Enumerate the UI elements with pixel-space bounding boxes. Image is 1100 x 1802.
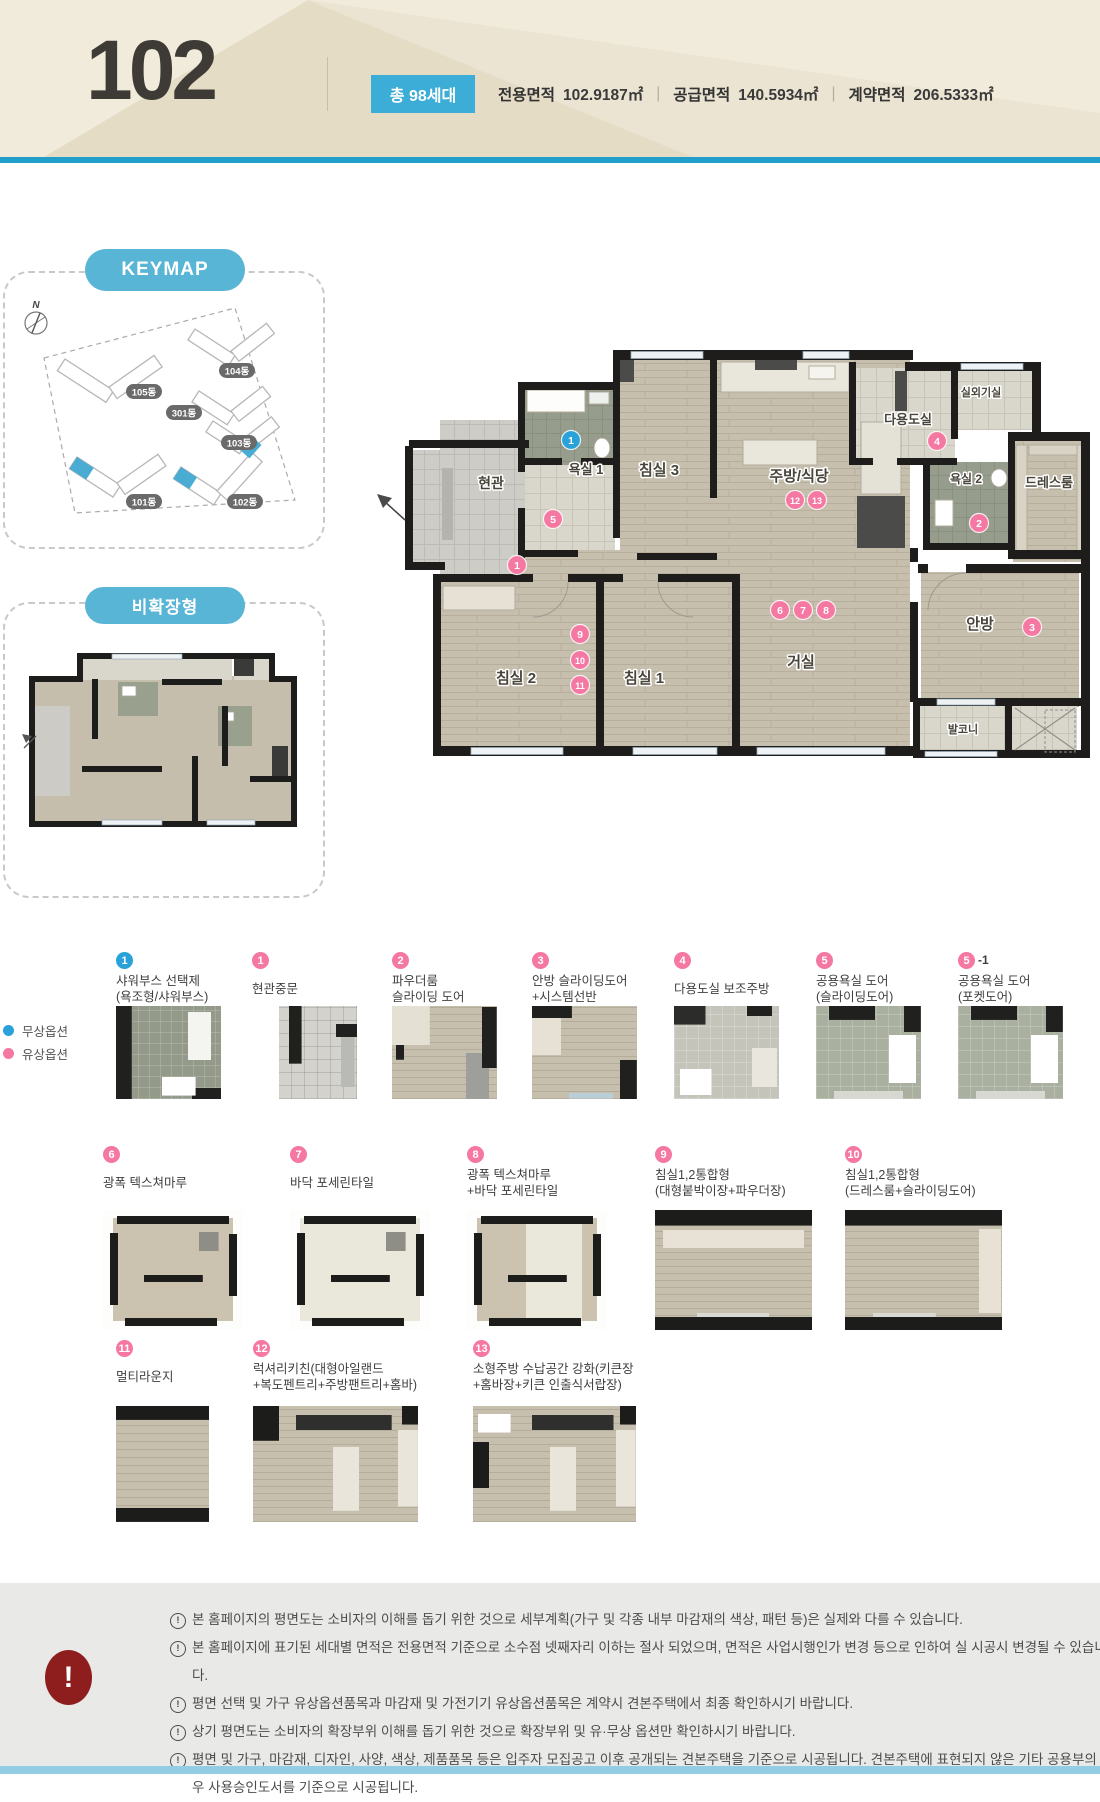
free-option-label: 무상옵션 bbox=[22, 1021, 68, 1040]
room-label: 다용도실 bbox=[884, 412, 932, 427]
option-number-badge-10: 10 bbox=[845, 1146, 862, 1163]
option-label: 공용욕실 도어(슬라이딩도어) bbox=[816, 972, 893, 1006]
option-number-badge-8: 8 bbox=[467, 1146, 484, 1163]
option-label: 샤워부스 선택제(욕조형/샤워부스) bbox=[116, 972, 208, 1006]
household-count-badge: 총 98세대 bbox=[371, 75, 475, 113]
room-label: 발코니 bbox=[948, 722, 978, 736]
floorplan-marker-9: 9 bbox=[571, 625, 590, 644]
floorplan-marker-11: 11 bbox=[571, 676, 590, 695]
floorplan-marker-1: 1 bbox=[562, 431, 581, 450]
floorplan-marker-12: 12 bbox=[786, 491, 805, 510]
area-summary: 전용면적102.9187㎡|공급면적140.5934㎡|계약면적206.5333… bbox=[498, 75, 994, 113]
floorplan-marker-13: 13 bbox=[808, 491, 827, 510]
option-number-badge-4: 4 bbox=[674, 952, 691, 969]
notice-bullet-icon: ! bbox=[170, 1725, 186, 1741]
floorplan-marker-10: 10 bbox=[571, 651, 590, 670]
nonexpanded-mini-floorplan bbox=[22, 646, 306, 846]
option-label: 공용욕실 도어(포켓도어) bbox=[958, 972, 1030, 1006]
svg-text:105동: 105동 bbox=[132, 388, 157, 399]
notice-text: 본 홈페이지의 평면도는 소비자의 이해를 돕기 위한 것으로 세부계획(가구 … bbox=[192, 1612, 963, 1627]
area-value: 102.9187㎡ bbox=[563, 83, 643, 105]
notice-text: 상기 평면도는 소비자의 확장부위 이해를 돕기 위한 것으로 확장부위 및 유… bbox=[192, 1724, 796, 1739]
keymap-site-plan: N 105동104동301동103동101동102동 bbox=[3, 271, 323, 547]
svg-text:11: 11 bbox=[575, 681, 585, 691]
notice-item: !본 홈페이지의 평면도는 소비자의 이해를 돕기 위한 것으로 세부계획(가구… bbox=[170, 1606, 1100, 1634]
option-label: 바닥 포세린타일 bbox=[290, 1166, 374, 1200]
option-number-badge-7: 7 bbox=[290, 1146, 307, 1163]
area-label: 계약면적 bbox=[848, 83, 905, 105]
room-label: 주방/식당 bbox=[769, 467, 829, 485]
option-label: 파우더룸슬라이딩 도어 bbox=[392, 972, 464, 1006]
notice-item: !본 홈페이지에 표기된 세대별 면적은 전용면적 기준으로 소수점 넷째자리 … bbox=[170, 1634, 1100, 1690]
option-number-badge-1: 1 bbox=[116, 952, 133, 969]
keymap-building-label: 301동 bbox=[166, 405, 202, 420]
option-number-badge-5: 5 bbox=[816, 952, 833, 969]
svg-text:10: 10 bbox=[575, 656, 585, 666]
floorplan-marker-5: 5 bbox=[544, 510, 563, 529]
svg-text:5: 5 bbox=[550, 514, 556, 526]
option-label: 안방 슬라이딩도어+시스템선반 bbox=[532, 972, 627, 1006]
area-separator: | bbox=[831, 85, 835, 103]
header-accent-line bbox=[0, 157, 1100, 163]
room-label: 욕실 2 bbox=[950, 471, 982, 486]
svg-text:2: 2 bbox=[976, 518, 982, 530]
option-label: 소형주방 수납공간 강화(키큰장+홈바장+키큰 인출식서랍장) bbox=[473, 1360, 634, 1394]
utility-sub-kitchen-option-thumbnail bbox=[674, 1006, 779, 1099]
floorplan-marker-7: 7 bbox=[794, 601, 813, 620]
option-label: 광폭 텍스쳐마루+바닥 포세린타일 bbox=[467, 1166, 558, 1200]
svg-text:104동: 104동 bbox=[225, 367, 250, 378]
legend-paid-option: 유상옵션 bbox=[3, 1044, 68, 1063]
svg-text:102동: 102동 bbox=[233, 498, 258, 509]
main-floorplan: 현관욕실 1침실 3주방/식당다용도실실외기실욕실 2드레스룸안방거실침실 1침… bbox=[365, 350, 1095, 760]
area-separator: | bbox=[656, 85, 660, 103]
option-label: 멀티라운지 bbox=[116, 1360, 174, 1394]
area-label: 공급면적 bbox=[673, 83, 730, 105]
option-number-badge-1: 1 bbox=[252, 952, 269, 969]
svg-text:1: 1 bbox=[514, 560, 520, 572]
svg-text:301동: 301동 bbox=[172, 409, 197, 420]
option-number-badge-2: 2 bbox=[392, 952, 409, 969]
option-number-badge-5-1: 5-1 bbox=[958, 952, 975, 969]
room-label: 욕실 1 bbox=[569, 462, 604, 477]
paid-option-label: 유상옵션 bbox=[22, 1044, 68, 1063]
shared-bath-pocket-door-option-thumbnail bbox=[958, 1006, 1063, 1099]
entry-middle-door-option-thumbnail bbox=[252, 1006, 357, 1099]
footer-accent-bar bbox=[0, 1766, 1100, 1774]
area-label: 전용면적 bbox=[498, 83, 555, 105]
luxury-kitchen-option-thumbnail bbox=[253, 1406, 418, 1522]
room-label: 침실 2 bbox=[496, 670, 536, 687]
room-label: 침실 1 bbox=[624, 670, 664, 687]
keymap-building-label: 101동 bbox=[126, 494, 162, 509]
option-label: 럭셔리키친(대형아일랜드+복도펜트리+주방팬트리+홈바) bbox=[253, 1360, 417, 1394]
header-divider bbox=[327, 57, 328, 111]
nonexpanded-title: 비확장형 bbox=[85, 587, 245, 624]
notice-bullet-icon: ! bbox=[170, 1697, 186, 1713]
combined-bedroom-closet-option-thumbnail bbox=[655, 1210, 812, 1330]
option-number-badge-12: 12 bbox=[253, 1340, 270, 1357]
option-label: 침실1,2통합형(드레스룸+슬라이딩도어) bbox=[845, 1166, 976, 1200]
paid-option-dot-icon bbox=[3, 1048, 14, 1059]
option-label: 현관중문 bbox=[252, 972, 298, 1006]
option-number-badge-9: 9 bbox=[655, 1146, 672, 1163]
area-value: 140.5934㎡ bbox=[738, 83, 818, 105]
svg-text:4: 4 bbox=[934, 436, 940, 448]
powder-room-sliding-door-option-thumbnail bbox=[392, 1006, 497, 1099]
area-value: 206.5333㎡ bbox=[914, 83, 994, 105]
notice-item: !평면 및 가구, 마감재, 디자인, 사양, 색상, 제품품목 등은 입주자 … bbox=[170, 1746, 1100, 1802]
multi-lounge-option-thumbnail bbox=[116, 1406, 209, 1522]
option-label: 다용도실 보조주방 bbox=[674, 972, 769, 1006]
porcelain-tile-floor-option-thumbnail bbox=[290, 1210, 430, 1330]
svg-text:6: 6 bbox=[777, 605, 783, 617]
svg-text:13: 13 bbox=[812, 496, 822, 506]
svg-text:1: 1 bbox=[568, 435, 574, 447]
svg-text:N: N bbox=[32, 300, 40, 311]
svg-text:101동: 101동 bbox=[132, 498, 157, 509]
floorplan-marker-8: 8 bbox=[817, 601, 836, 620]
master-sliding-door-option-thumbnail bbox=[532, 1006, 637, 1099]
floorplan-marker-1: 1 bbox=[508, 556, 527, 575]
mixed-floor-option-thumbnail bbox=[467, 1210, 607, 1330]
option-label: 광폭 텍스쳐마루 bbox=[103, 1166, 187, 1200]
option-label: 침실1,2통합형(대형붙박이장+파우더장) bbox=[655, 1166, 786, 1200]
small-kitchen-storage-option-thumbnail bbox=[473, 1406, 636, 1522]
floorplan-marker-6: 6 bbox=[771, 601, 790, 620]
room-label: 안방 bbox=[966, 615, 994, 633]
keymap-building-label: 102동 bbox=[227, 494, 263, 509]
room-label: 현관 bbox=[478, 475, 504, 491]
room-label: 거실 bbox=[787, 654, 815, 671]
notice-text: 본 홈페이지에 표기된 세대별 면적은 전용면적 기준으로 소수점 넷째자리 이… bbox=[192, 1640, 1100, 1683]
keymap-building-label: 105동 bbox=[126, 384, 162, 399]
shower-booth-option-thumbnail bbox=[116, 1006, 221, 1099]
notice-bullet-icon: ! bbox=[170, 1613, 186, 1629]
shared-bath-sliding-door-option-thumbnail bbox=[816, 1006, 921, 1099]
svg-text:3: 3 bbox=[1029, 622, 1035, 634]
combined-bedroom-dressroom-option-thumbnail bbox=[845, 1210, 1002, 1330]
floorplan-marker-2: 2 bbox=[970, 514, 989, 533]
option-number-badge-3: 3 bbox=[532, 952, 549, 969]
legend-free-option: 무상옵션 bbox=[3, 1021, 68, 1040]
notice-text: 평면 선택 및 가구 유상옵션품목과 마감재 및 가전기기 유상옵션품목은 계약… bbox=[192, 1696, 853, 1711]
svg-text:12: 12 bbox=[790, 496, 800, 506]
svg-text:103동: 103동 bbox=[227, 439, 252, 450]
option-number-suffix: -1 bbox=[978, 953, 989, 967]
room-label: 침실 3 bbox=[639, 462, 679, 479]
option-number-badge-11: 11 bbox=[116, 1340, 133, 1357]
keymap-building-label: 104동 bbox=[219, 363, 255, 378]
room-label: 실외기실 bbox=[961, 385, 1001, 399]
warning-icon: ! bbox=[45, 1650, 92, 1705]
wide-textured-floor-option-thumbnail bbox=[103, 1210, 243, 1330]
svg-text:7: 7 bbox=[800, 605, 806, 617]
svg-text:8: 8 bbox=[823, 605, 829, 617]
floorplan-marker-4: 4 bbox=[928, 432, 947, 451]
option-number-badge-13: 13 bbox=[473, 1340, 490, 1357]
room-label: 드레스룸 bbox=[1025, 475, 1073, 490]
notice-item: !평면 선택 및 가구 유상옵션품목과 마감재 및 가전기기 유상옵션품목은 계… bbox=[170, 1690, 1100, 1718]
option-number-badge-6: 6 bbox=[103, 1146, 120, 1163]
compass-icon: N bbox=[25, 300, 47, 334]
free-option-dot-icon bbox=[3, 1025, 14, 1036]
keymap-building-label: 103동 bbox=[221, 435, 257, 450]
notice-item: !상기 평면도는 소비자의 확장부위 이해를 돕기 위한 것으로 확장부위 및 … bbox=[170, 1718, 1100, 1746]
notice-bullet-icon: ! bbox=[170, 1641, 186, 1657]
unit-type-title: 102 bbox=[86, 22, 214, 119]
svg-text:9: 9 bbox=[577, 629, 583, 641]
floorplan-marker-3: 3 bbox=[1023, 618, 1042, 637]
